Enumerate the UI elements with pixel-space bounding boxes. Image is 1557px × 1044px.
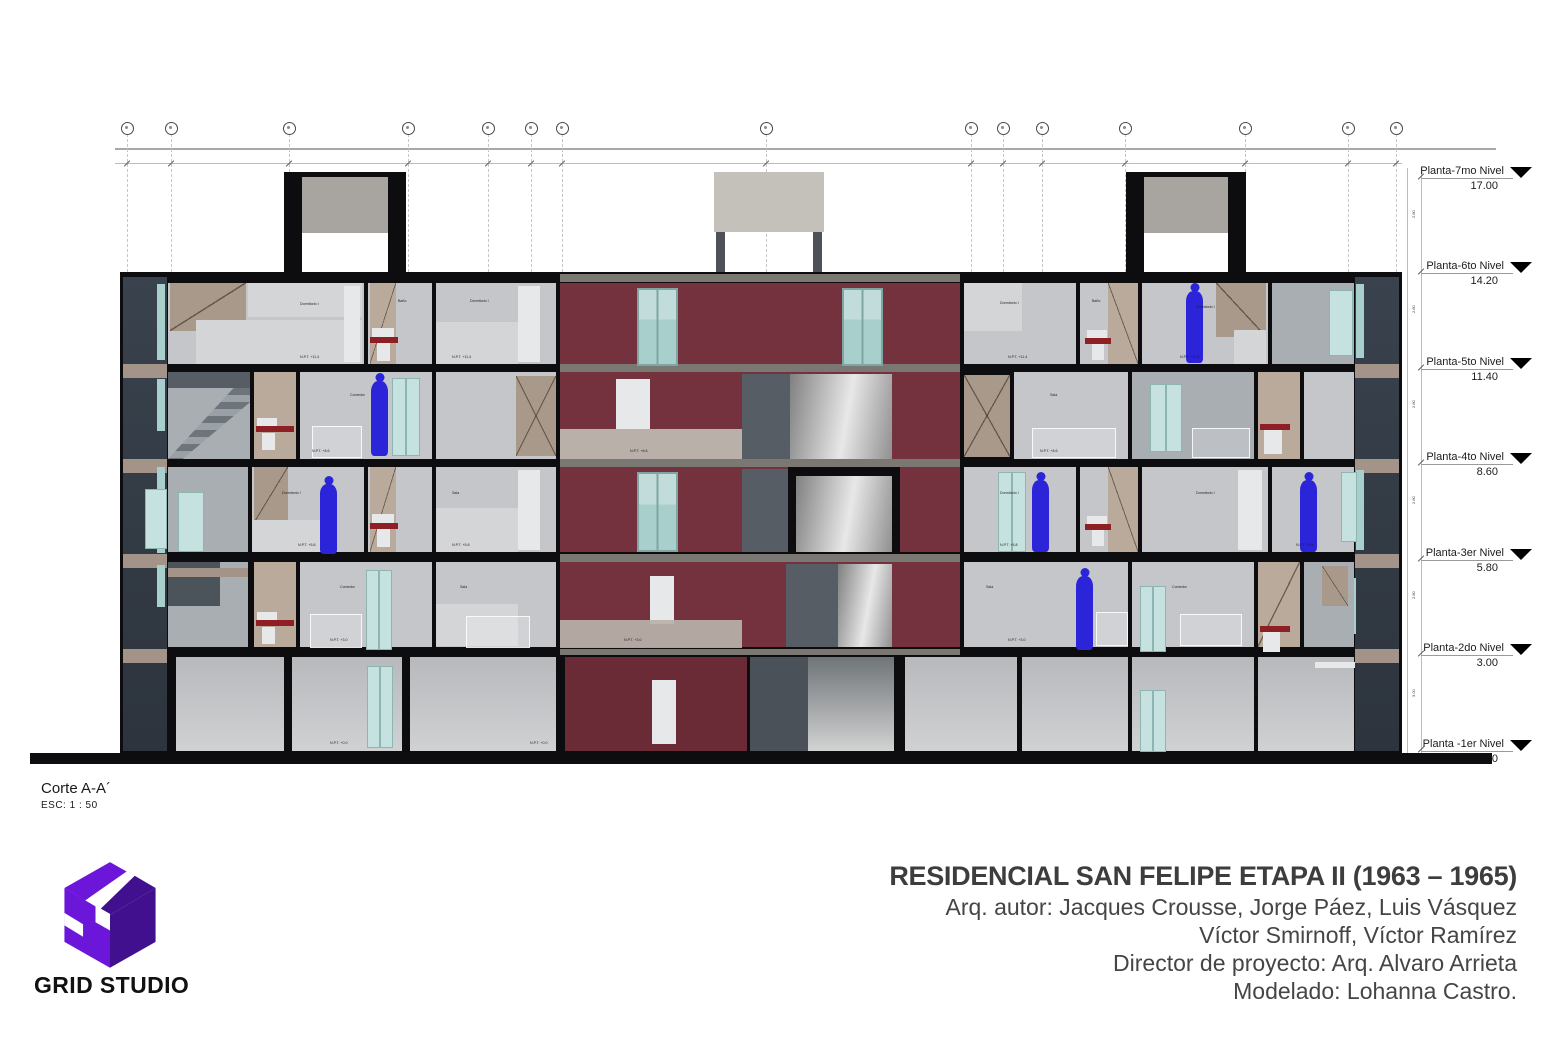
grid-bubble (165, 122, 178, 135)
level-line (1421, 655, 1513, 656)
door (652, 680, 676, 744)
floor-zone (436, 322, 518, 364)
level-dimension-text: 2.80 (1412, 591, 1417, 599)
level-name: Planta-4to Nivel (1408, 451, 1504, 463)
level-label: Planta-6to Nivel 14.20 (1408, 260, 1504, 287)
corridor-wall (742, 562, 786, 647)
sink-pedestal (262, 433, 275, 450)
level-value: 17.00 (1408, 180, 1504, 192)
level-value: 14.20 (1408, 275, 1504, 287)
facade-band (1355, 554, 1399, 568)
level-label: Planta-5to Nivel 11.40 (1408, 356, 1504, 383)
level-label: Planta-7mo Nivel 17.00 (1408, 165, 1504, 192)
window (637, 288, 678, 366)
level-marker-icon (1510, 740, 1532, 751)
room-label: Dormitorio I (282, 492, 301, 496)
landing (168, 372, 250, 388)
elevator-door (808, 657, 894, 751)
grid-bubble (525, 122, 538, 135)
sofa (466, 616, 530, 648)
slab-edge (560, 364, 960, 372)
slab-edge (560, 274, 960, 282)
glass-door (367, 666, 393, 748)
toilet (1263, 632, 1280, 652)
level-value: 11.40 (1408, 371, 1504, 383)
window (178, 492, 204, 552)
grid-bubble (1390, 122, 1403, 135)
poster-sheet: { "palette": { "wall": "#0d0d0f", "slate… (0, 0, 1557, 1044)
credit-line: Modelado: Lohanna Castro. (757, 977, 1517, 1005)
storefront-panel (1258, 657, 1354, 751)
grid-axis-line (171, 134, 172, 272)
window (637, 472, 678, 552)
sink (1087, 516, 1107, 524)
table (1192, 428, 1250, 458)
level-line (1421, 273, 1513, 274)
grid-axis-line (1042, 134, 1043, 272)
level-dimension-text: 2.80 (1412, 496, 1417, 504)
room-label: N.P.T. +5.8 (298, 544, 315, 548)
grid-bubble (283, 122, 296, 135)
door (344, 286, 360, 362)
room-label: Comedor (1172, 586, 1187, 590)
rooftop-panel (302, 177, 388, 233)
room-label: Sala (986, 586, 993, 590)
grid-axis-line (1396, 134, 1397, 272)
rooftop-opening (1144, 233, 1228, 272)
credit-line: Director de proyecto: Arq. Alvaro Arriet… (757, 949, 1517, 977)
sink-pedestal (262, 627, 275, 644)
table (1180, 614, 1242, 646)
grid-bubble (482, 122, 495, 135)
room-label: Dormitorio I (1000, 302, 1019, 306)
sink (372, 328, 394, 337)
grid-bubble (1342, 122, 1355, 135)
facade-window (157, 379, 165, 431)
room-label: N.P.T. +3.0 (1008, 639, 1025, 643)
rooftop-panel (1144, 177, 1228, 233)
elevator-door (838, 564, 892, 647)
wall-panel (1216, 283, 1266, 337)
dimension-line (115, 163, 1402, 164)
facade-band (1355, 364, 1399, 378)
wall-panel (1108, 283, 1138, 364)
person-figure (1076, 576, 1093, 650)
level-marker-icon (1510, 549, 1532, 560)
facade-window (157, 284, 165, 360)
room-label: N.P.T. +11.4 (1008, 356, 1027, 360)
room-label: N.P.T. +5.8 (1296, 544, 1313, 548)
room-label: N.P.T. +8.6 (1040, 450, 1057, 454)
level-name: Planta-6to Nivel (1408, 260, 1504, 272)
sink-pedestal (1092, 344, 1104, 360)
room-label: N.P.T. +8.6 (312, 450, 329, 454)
room-label: Comedor (350, 394, 365, 398)
level-dimension-text: 2.80 (1412, 400, 1417, 408)
sink-pedestal (1092, 530, 1104, 546)
sink (372, 514, 394, 523)
level-line (1421, 464, 1513, 465)
door-leaf (516, 376, 556, 456)
room-label: Dormitorio I (1196, 306, 1215, 310)
grid-axis-line (531, 134, 532, 272)
storefront-panel (905, 657, 1017, 751)
storefront-panel (1022, 657, 1128, 751)
wardrobe (1234, 330, 1266, 364)
grid-bubble (556, 122, 569, 135)
level-name: Planta-3er Nivel (1408, 547, 1504, 559)
facade-band (123, 364, 167, 378)
cube-logo-icon (46, 858, 174, 974)
ground-line (30, 753, 1492, 764)
level-line (1421, 369, 1513, 370)
logo-wordmark: GRID STUDIO (34, 972, 189, 999)
level-label: Planta-2do Nivel 3.00 (1408, 642, 1504, 669)
level-name: Planta -1er Nivel (1408, 738, 1504, 750)
glass-door (998, 472, 1026, 552)
window (1329, 290, 1353, 356)
toilet (1264, 430, 1282, 454)
grid-axis-line (562, 134, 563, 272)
counter (256, 620, 294, 626)
level-value: 5.80 (1408, 562, 1504, 574)
level-label: Planta-4to Nivel 8.60 (1408, 451, 1504, 478)
level-name: Planta-2do Nivel (1408, 642, 1504, 654)
facade-band (123, 649, 167, 663)
grid-bubble (121, 122, 134, 135)
room-label: N.P.T. +3.0 (624, 639, 641, 643)
elevator-door (796, 476, 892, 552)
room-label: N.P.T. +0.0 (330, 742, 347, 746)
level-marker-icon (1510, 358, 1532, 369)
window (842, 288, 883, 366)
grid-bubble (965, 122, 978, 135)
credit-line: Arq. autor: Jacques Crousse, Jorge Páez,… (757, 893, 1517, 921)
facade-band (168, 568, 248, 577)
facade-window (157, 565, 165, 607)
corridor-wall (560, 283, 960, 364)
room-label: Dormitorio I (300, 303, 319, 307)
storefront-panel (410, 657, 556, 751)
room-label: Comedor (340, 586, 355, 590)
room-label: Dormitorio I (1000, 492, 1019, 496)
section-caption: Corte A-A´ (41, 780, 111, 797)
glass-door (366, 570, 392, 650)
glass-door (392, 378, 420, 456)
wall-panel (1108, 467, 1138, 552)
grid-axis-line (127, 134, 128, 272)
grid-axis-line (408, 134, 409, 272)
level-marker-icon (1510, 262, 1532, 273)
person-figure (371, 381, 388, 456)
grid-axis-line (971, 134, 972, 272)
slab-edge (560, 459, 960, 467)
wall-panel (1322, 566, 1348, 606)
title-block: RESIDENCIAL SAN FELIPE ETAPA II (1963 – … (757, 860, 1517, 1005)
window (1140, 586, 1166, 652)
rooftop-slab (714, 172, 824, 232)
sink-pedestal (377, 529, 390, 547)
room-label: N.P.T. +3.0 (330, 639, 347, 643)
grid-axis-line (488, 134, 489, 272)
wardrobe (964, 283, 1022, 331)
level-dimension-text: 2.80 (1412, 210, 1417, 218)
glass-door (1140, 690, 1166, 752)
facade-window (1356, 284, 1364, 358)
shaft-panel (742, 374, 790, 459)
shaft-panel (750, 657, 808, 751)
window (1341, 472, 1357, 542)
storefront-panel (176, 657, 284, 751)
person-figure (320, 484, 337, 554)
room-label: Sala (460, 586, 467, 590)
credit-line: Víctor Smirnoff, Víctor Ramírez (757, 921, 1517, 949)
counter (256, 426, 294, 432)
grid-axis-line (1348, 134, 1349, 272)
room-label: N.P.T. +0.0 (530, 742, 547, 746)
level-marker-icon (1510, 453, 1532, 464)
level-dimension-text: 3.00 (1412, 689, 1417, 697)
level-name: Planta-7mo Nivel (1408, 165, 1504, 177)
shaft-panel (742, 469, 788, 552)
level-label: Planta-3er Nivel 5.80 (1408, 547, 1504, 574)
room-label: N.P.T. +11.4 (1180, 356, 1199, 360)
room-label: Dormitorio I (1196, 492, 1215, 496)
level-line (1421, 178, 1513, 179)
chair (1096, 612, 1128, 646)
person-figure (1186, 291, 1203, 363)
room-label: N.P.T. +5.8 (452, 544, 469, 548)
grid-studio-logo (46, 858, 206, 979)
rooftop-opening (302, 233, 388, 272)
room-label: Sala (1050, 394, 1057, 398)
door (518, 470, 540, 550)
room-label: Baño (398, 300, 406, 304)
table (310, 614, 362, 648)
facade-window (1356, 470, 1364, 550)
corridor-floor (560, 620, 742, 648)
level-marker-icon (1510, 644, 1532, 655)
room-label: Dormitorio I (470, 300, 489, 304)
rooftop-leg (716, 232, 725, 272)
floor-zone (196, 320, 362, 364)
door-leaf (964, 375, 1010, 457)
grid-axis-line (1003, 134, 1004, 272)
sink (257, 612, 277, 620)
bathroom (254, 562, 296, 647)
scale-caption: ESC: 1 : 50 (41, 800, 98, 811)
facade-band (1355, 649, 1399, 663)
elevator-door (790, 374, 892, 459)
grid-bubble (760, 122, 773, 135)
corridor-floor (560, 429, 742, 459)
door (518, 286, 540, 362)
bathroom (254, 372, 296, 459)
level-dimension-text: 2.80 (1412, 305, 1417, 313)
door (650, 576, 674, 624)
level-line (1421, 560, 1513, 561)
room-label: N.P.T. +11.4 (452, 356, 471, 360)
slab-edge (560, 649, 960, 655)
room-label: Baño (1092, 300, 1100, 304)
facade-window (145, 489, 167, 549)
room-label: N.P.T. +5.8 (1000, 544, 1017, 548)
shaft-panel (786, 564, 838, 647)
room (1304, 372, 1354, 459)
grid-bubble (1239, 122, 1252, 135)
level-value: 3.00 (1408, 657, 1504, 669)
level-line (1421, 751, 1513, 752)
sink-pedestal (377, 343, 390, 361)
person-figure (1032, 480, 1049, 552)
sink (1087, 330, 1107, 338)
slab-edge (560, 554, 960, 562)
level-marker-icon (1510, 167, 1532, 178)
window (1150, 384, 1182, 452)
grid-bubble (1119, 122, 1132, 135)
lintel (1315, 662, 1355, 668)
door (1238, 470, 1262, 550)
level-name: Planta-5to Nivel (1408, 356, 1504, 368)
level-value: 8.60 (1408, 466, 1504, 478)
room-label: N.P.T. +11.4 (300, 356, 319, 360)
person-figure (1300, 480, 1317, 552)
rooftop-leg (813, 232, 822, 272)
room-label: Sala (452, 492, 459, 496)
project-title: RESIDENCIAL SAN FELIPE ETAPA II (1963 – … (757, 860, 1517, 893)
dimension-line (115, 148, 1496, 150)
grid-bubble (1036, 122, 1049, 135)
floor-zone (436, 508, 518, 552)
grid-bubble (997, 122, 1010, 135)
sink (257, 418, 277, 426)
grid-bubble (402, 122, 415, 135)
room-label: N.P.T. +8.6 (630, 450, 647, 454)
